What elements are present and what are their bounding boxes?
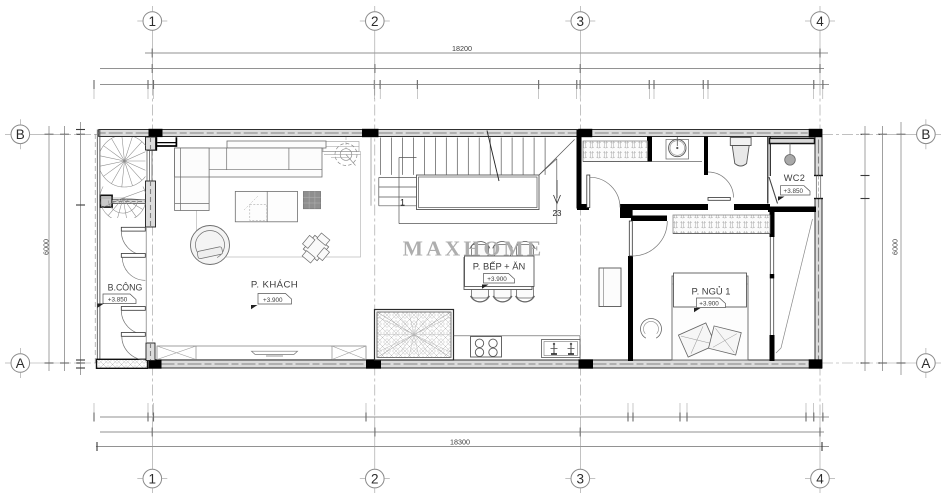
svg-text:2: 2 [371, 14, 379, 29]
svg-text:B: B [921, 127, 930, 142]
svg-text:A: A [921, 356, 930, 371]
svg-text:+3.900: +3.900 [263, 297, 283, 304]
svg-text:B.CÔNG: B.CÔNG [108, 283, 143, 293]
svg-text:3: 3 [577, 14, 585, 29]
svg-text:18200: 18200 [452, 44, 472, 53]
svg-text:2: 2 [371, 472, 379, 487]
svg-text:23: 23 [553, 209, 562, 218]
svg-text:P. NGỦ 1: P. NGỦ 1 [692, 286, 731, 297]
svg-text:3: 3 [577, 472, 585, 487]
svg-text:4: 4 [816, 14, 824, 29]
svg-text:+3.850: +3.850 [784, 188, 804, 195]
svg-text:1: 1 [149, 14, 157, 29]
svg-text:4: 4 [816, 472, 824, 487]
svg-text:+3.850: +3.850 [108, 296, 128, 303]
svg-text:1: 1 [149, 472, 157, 487]
svg-text:B: B [16, 127, 25, 142]
svg-text:P. KHÁCH: P. KHÁCH [251, 280, 298, 291]
svg-text:MAXHOME: MAXHOME [403, 237, 545, 261]
svg-text:P. BẾP + ĂN: P. BẾP + ĂN [473, 261, 526, 272]
svg-text:+3.900: +3.900 [487, 276, 507, 283]
svg-text:A: A [16, 356, 25, 371]
svg-text:6000: 6000 [891, 239, 900, 255]
svg-text:18300: 18300 [450, 437, 470, 446]
svg-text:1: 1 [400, 198, 405, 208]
svg-text:+3.900: +3.900 [699, 300, 719, 307]
svg-text:WC2: WC2 [784, 173, 806, 183]
svg-text:6000: 6000 [41, 239, 50, 255]
